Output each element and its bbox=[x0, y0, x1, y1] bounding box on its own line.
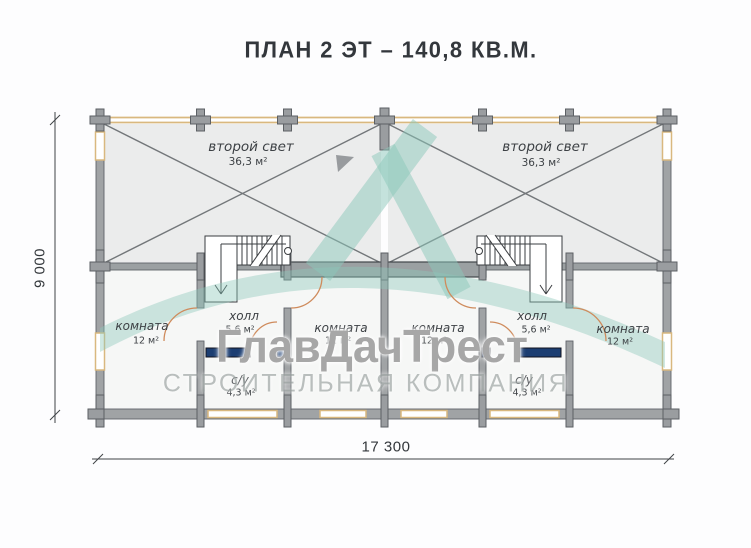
dimension-line-height bbox=[50, 112, 60, 423]
dimension-width-value: 17 300 bbox=[362, 439, 411, 456]
room-right-label: комната bbox=[596, 322, 649, 336]
room-left-area: 12 м² bbox=[133, 336, 159, 347]
watermark-subtitle: СТРОИТЕЛЬНАЯ КОМПАНИЯ bbox=[163, 370, 569, 399]
room-left-label: комната bbox=[115, 319, 168, 333]
stair-right-newel bbox=[476, 248, 483, 255]
stair-left-newel bbox=[285, 248, 292, 255]
room-right-area: 12 м² bbox=[607, 337, 633, 348]
watermark-brand: ГлавДачТрест bbox=[216, 319, 528, 373]
second-light-right-label: второй свет bbox=[502, 139, 588, 155]
dimension-line-width bbox=[92, 454, 674, 464]
dimension-height-value: 9 000 bbox=[32, 248, 49, 288]
second-light-right-area: 36,3 м² bbox=[522, 157, 561, 169]
second-light-left-label: второй свет bbox=[208, 139, 294, 155]
second-light-left-area: 36,3 м² bbox=[229, 156, 268, 168]
floor-plan-drawing bbox=[0, 0, 751, 548]
page-title: ПЛАН 2 ЭТ – 140,8 КВ.М. bbox=[244, 37, 537, 64]
floor-plan-page: ПЛАН 2 ЭТ – 140,8 КВ.М. второй свет 36,3… bbox=[0, 0, 751, 548]
